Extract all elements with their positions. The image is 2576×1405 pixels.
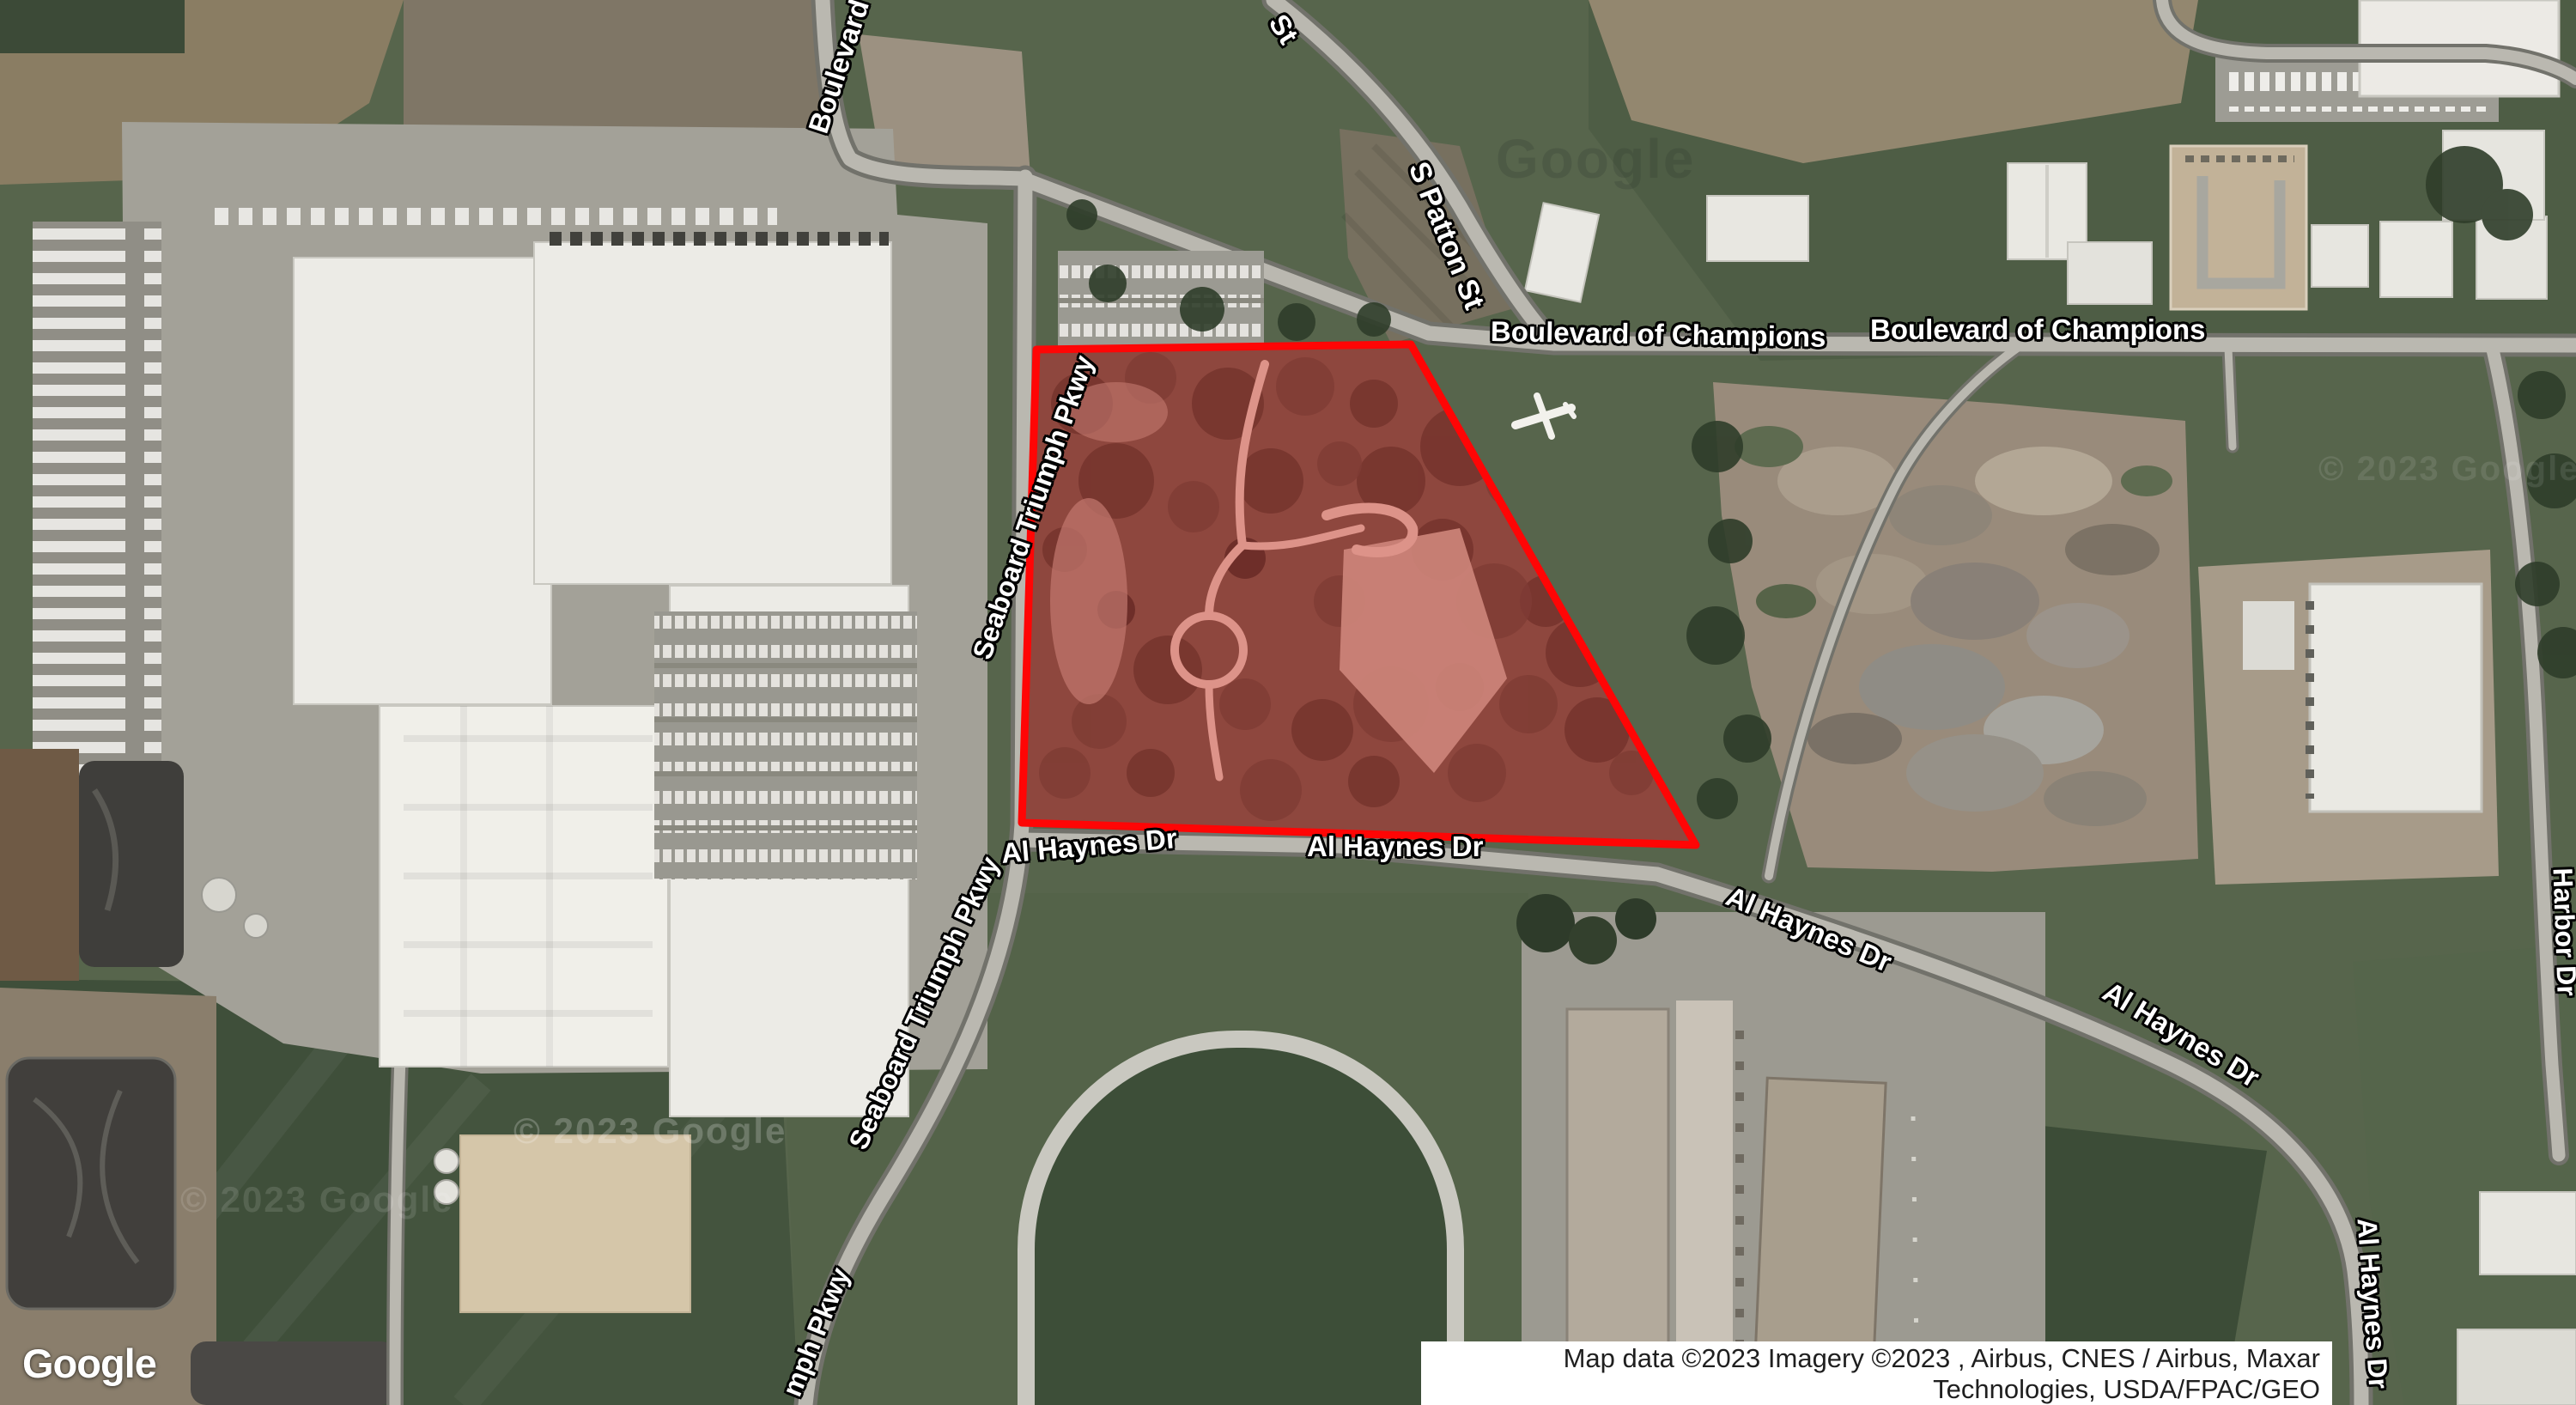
map-attribution: Map data ©2023 Imagery ©2023 , Airbus, C…	[1421, 1341, 2332, 1405]
attribution-line-1: Map data ©2023 Imagery ©2023 , Airbus, C…	[1421, 1343, 2320, 1374]
map-canvas[interactable]: Boulevard oStS Patton StBoulevard of Cha…	[0, 0, 2576, 1405]
google-logo[interactable]: Google	[22, 1340, 156, 1387]
satellite-terrain	[0, 0, 2576, 1405]
attribution-line-2: Technologies, USDA/FPAC/GEO	[1421, 1374, 2320, 1405]
